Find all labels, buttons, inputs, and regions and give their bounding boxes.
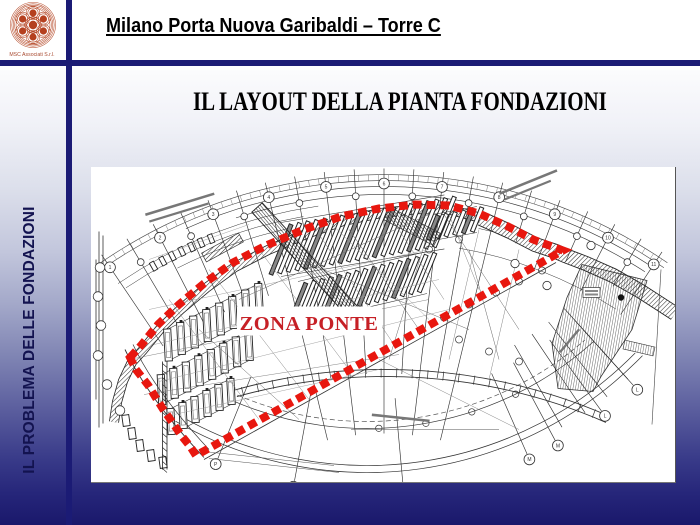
svg-text:L: L: [636, 388, 639, 394]
svg-text:6: 6: [383, 181, 386, 187]
svg-text:9: 9: [553, 212, 556, 218]
svg-text:10: 10: [605, 236, 611, 242]
svg-text:3: 3: [212, 212, 215, 218]
svg-text:11: 11: [651, 262, 656, 268]
svg-text:5: 5: [325, 185, 328, 191]
svg-text:M: M: [527, 457, 531, 463]
svg-text:ZONA PONTE: ZONA PONTE: [240, 313, 379, 335]
svg-text:8: 8: [498, 195, 501, 201]
svg-text:M: M: [556, 443, 560, 449]
svg-text:L: L: [604, 414, 607, 420]
svg-text:4: 4: [267, 195, 270, 201]
svg-text:1: 1: [109, 265, 112, 271]
svg-text:2: 2: [159, 236, 162, 242]
svg-text:7: 7: [441, 185, 444, 191]
